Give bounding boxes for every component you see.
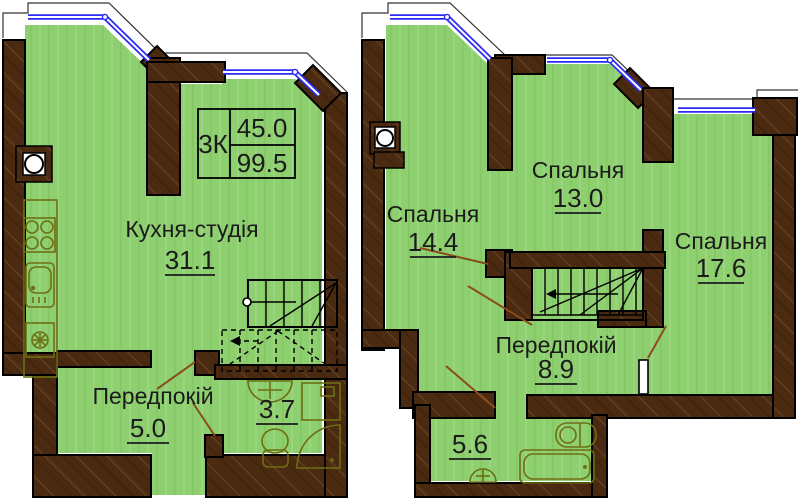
hallway-area-left: 5.0	[130, 413, 166, 443]
bedroom2-label: Спальня	[532, 157, 624, 183]
bedroom2-area: 13.0	[553, 183, 604, 213]
door-leaf-bedroom3	[639, 360, 648, 394]
flat-area-total-label: 99.5	[237, 148, 288, 178]
floor-plan-drawing: 3К 45.0 99.5	[0, 0, 802, 500]
flat-type-label: 3К	[198, 129, 228, 159]
left-plan-lower-level: 3К 45.0 99.5	[3, 3, 347, 497]
left-vent-shaft	[16, 146, 52, 182]
flat-area-level-label: 45.0	[237, 113, 288, 143]
hallway-label-left: Передпокій	[92, 383, 213, 409]
hallway-area-right: 8.9	[538, 354, 574, 384]
bedroom3-label: Спальня	[675, 228, 767, 254]
bedroom3-area: 17.6	[696, 253, 747, 283]
floor-plan-canvas: 3К 45.0 99.5	[0, 0, 802, 500]
bathroom-area-left: 3.7	[259, 394, 295, 424]
kitchen-studio-area: 31.1	[165, 245, 216, 275]
bedroom1-label: Спальня	[387, 201, 479, 227]
bedroom1-area: 14.4	[408, 227, 459, 257]
bathroom-area-right: 5.6	[452, 429, 488, 459]
right-vent-shaft	[370, 122, 404, 168]
kitchen-studio-label: Кухня-студія	[125, 216, 258, 242]
right-plan-upper-level: Спальня 14.4 Спальня 13.0 Спальня 17.6 П…	[362, 3, 798, 497]
